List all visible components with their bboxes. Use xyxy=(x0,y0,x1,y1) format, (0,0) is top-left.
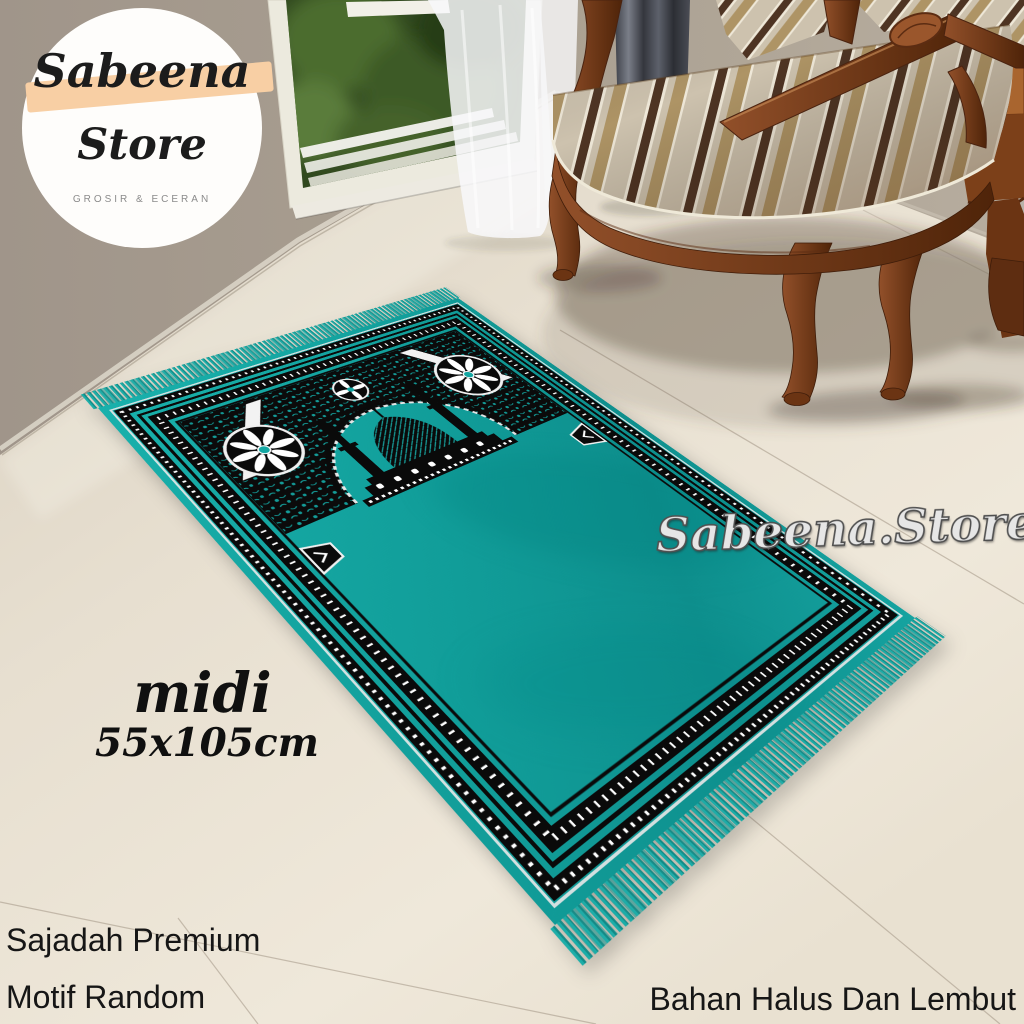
brand-name-line2: Store xyxy=(22,124,262,167)
caption-material-line2: Motif Random xyxy=(6,979,205,1016)
badge-tagline: GROSIR & ECERAN xyxy=(22,194,262,205)
caption-bottom-right: Bahan Halus Dan Lembut xyxy=(650,981,1016,1018)
size-name: midi xyxy=(95,664,310,722)
product-photo-scene: Sabeena Store GROSIR & ECERAN Sabeena.St… xyxy=(0,0,1024,1024)
brand-name-line1: Sabeena xyxy=(34,48,251,94)
caption-material-line1: Sajadah Premium xyxy=(6,922,260,959)
size-dimensions: 55x105cm xyxy=(95,722,310,765)
store-badge: Sabeena Store GROSIR & ECERAN xyxy=(22,8,262,248)
chair-shadow xyxy=(538,217,1024,430)
size-label: midi 55x105cm xyxy=(95,664,310,765)
